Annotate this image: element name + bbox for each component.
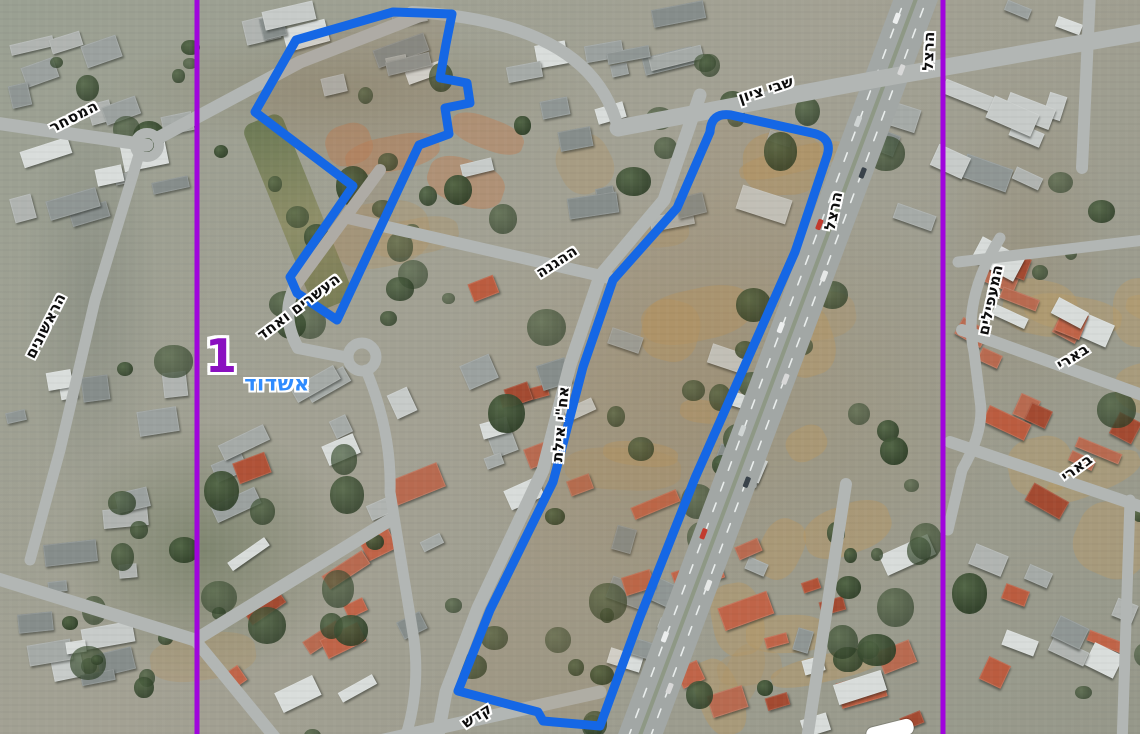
street-label: המעפילים	[976, 263, 1006, 336]
label-layer: אשדוד 1 המסחרהראשוניםשבי ציוןהרצלהרצלהעש…	[0, 0, 1140, 734]
city-label-ashdod: אשדוד	[244, 374, 310, 395]
street-label: קדש	[459, 701, 494, 731]
street-label: המסחר	[47, 98, 100, 135]
street-label: שבי ציון	[737, 74, 796, 106]
street-label: הרצל	[823, 190, 846, 232]
street-label: בארי	[1054, 341, 1091, 372]
partial-street-label	[865, 717, 915, 734]
street-label: הראשונים	[23, 291, 69, 361]
section-number-label: 1	[205, 333, 237, 379]
street-label: אח"י אילת	[550, 385, 572, 462]
street-label: הרצל	[921, 31, 937, 71]
street-label: בארי	[1059, 452, 1096, 485]
street-label: ההגנה	[534, 243, 581, 281]
satellite-map[interactable]: אשדוד 1 המסחרהראשוניםשבי ציוןהרצלהרצלהעש…	[0, 0, 1140, 734]
street-label: העשרים ואחד	[255, 271, 343, 343]
